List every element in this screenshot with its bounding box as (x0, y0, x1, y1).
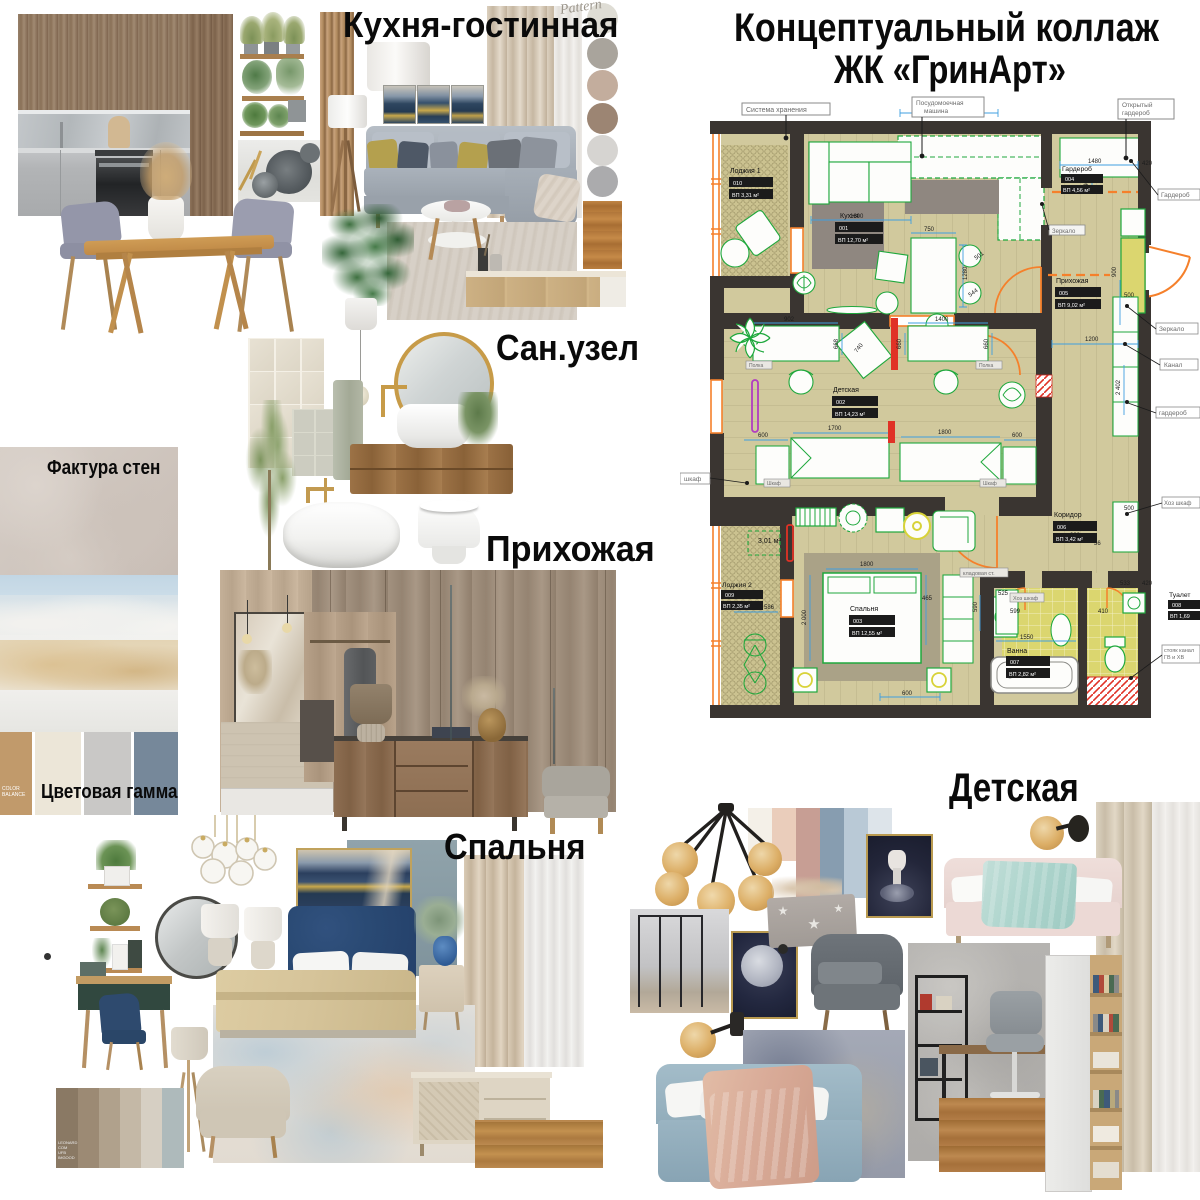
svg-text:420: 420 (1142, 161, 1153, 167)
svg-text:009: 009 (725, 593, 734, 599)
svg-text:Кухня: Кухня (840, 213, 859, 220)
svg-text:500: 500 (1124, 293, 1135, 299)
svg-text:004: 004 (1065, 177, 1074, 183)
svg-text:Гардероб: Гардероб (1161, 191, 1190, 199)
svg-text:ВП 3,31 м²: ВП 3,31 м² (732, 193, 759, 199)
svg-text:гардероб: гардероб (1159, 409, 1187, 417)
svg-text:ВП 12,55 м²: ВП 12,55 м² (852, 631, 882, 637)
svg-text:002: 002 (836, 400, 845, 406)
svg-text:005: 005 (1059, 291, 1068, 297)
svg-text:гардероб: гардероб (1122, 109, 1150, 117)
svg-text:420: 420 (1142, 581, 1153, 587)
svg-text:Шкаф: Шкаф (983, 481, 997, 487)
svg-text:Зеркало: Зеркало (1159, 326, 1185, 333)
svg-text:Хоз шкаф: Хоз шкаф (1164, 501, 1192, 507)
svg-text:Шкаф: Шкаф (767, 481, 781, 487)
svg-text:410: 410 (1098, 609, 1109, 615)
svg-text:стояк канал: стояк канал (1164, 648, 1194, 654)
svg-text:кладовая ст.: кладовая ст. (963, 571, 995, 577)
svg-text:660: 660 (897, 338, 903, 349)
svg-text:3,01 м²: 3,01 м² (758, 538, 781, 545)
svg-text:Система хранения: Система хранения (746, 107, 807, 114)
svg-text:668: 668 (834, 338, 840, 349)
svg-text:ВП 2,82 м²: ВП 2,82 м² (1009, 672, 1036, 678)
svg-text:ВП 9,02 м²: ВП 9,02 м² (1058, 303, 1085, 309)
svg-text:600: 600 (1012, 433, 1023, 439)
svg-text:Канал: Канал (1164, 362, 1183, 369)
svg-text:Лоджия 1: Лоджия 1 (730, 168, 761, 175)
svg-text:600: 600 (758, 433, 769, 439)
svg-text:машина: машина (924, 108, 949, 115)
svg-text:1480: 1480 (1088, 159, 1102, 165)
svg-text:006: 006 (1057, 525, 1066, 531)
svg-text:Открытый: Открытый (1122, 101, 1153, 109)
svg-text:ВП 12,70 м²: ВП 12,70 м² (838, 238, 868, 244)
svg-text:ВП 1,69: ВП 1,69 (1170, 614, 1190, 620)
svg-text:1550: 1550 (1020, 635, 1034, 641)
svg-text:2 000: 2 000 (802, 609, 808, 625)
svg-text:1280: 1280 (963, 266, 969, 280)
svg-text:599: 599 (1010, 609, 1021, 615)
svg-text:Лоджия 2: Лоджия 2 (722, 582, 752, 589)
svg-text:2 402: 2 402 (1116, 379, 1122, 395)
svg-text:525: 525 (998, 591, 1009, 597)
svg-text:ВП 14,23 м²: ВП 14,23 м² (835, 412, 865, 418)
svg-text:750: 750 (924, 227, 935, 233)
svg-text:Прихожая: Прихожая (1056, 278, 1089, 285)
svg-text:533: 533 (1120, 581, 1131, 587)
svg-text:Полка: Полка (979, 363, 993, 369)
svg-text:Хоз шкаф: Хоз шкаф (1013, 596, 1039, 602)
svg-text:600: 600 (902, 691, 913, 697)
svg-text:003: 003 (853, 619, 862, 625)
svg-text:ГВ и ХВ: ГВ и ХВ (1164, 655, 1184, 661)
svg-text:1400: 1400 (935, 317, 949, 323)
svg-text:465: 465 (922, 596, 933, 602)
svg-text:590: 590 (973, 601, 979, 612)
svg-text:Ванна: Ванна (1007, 648, 1027, 655)
svg-text:Детская: Детская (833, 387, 859, 394)
svg-text:Посудомоечная: Посудомоечная (916, 100, 964, 107)
svg-text:ВП 2,35 м²: ВП 2,35 м² (723, 604, 750, 610)
svg-text:1800: 1800 (938, 430, 952, 436)
svg-text:902: 902 (784, 317, 795, 323)
svg-text:Гардероб: Гардероб (1062, 165, 1092, 173)
svg-text:1700: 1700 (828, 426, 842, 432)
svg-text:Коридор: Коридор (1054, 512, 1082, 519)
svg-text:001: 001 (839, 226, 848, 232)
svg-text:586: 586 (764, 605, 775, 611)
svg-text:660: 660 (984, 338, 990, 349)
svg-text:Туалет: Туалет (1169, 592, 1191, 599)
svg-text:Спальня: Спальня (850, 606, 878, 613)
svg-text:010: 010 (733, 181, 742, 187)
svg-text:ВП 4,56 м²: ВП 4,56 м² (1063, 188, 1090, 194)
svg-text:1200: 1200 (1085, 337, 1099, 343)
svg-text:Зеркало: Зеркало (1052, 229, 1076, 235)
svg-text:Полка: Полка (749, 363, 763, 369)
svg-text:1800: 1800 (860, 562, 874, 568)
svg-text:900: 900 (1112, 266, 1118, 277)
svg-text:008: 008 (1172, 603, 1181, 609)
svg-text:007: 007 (1010, 660, 1019, 666)
svg-text:ВП 3,42 м²: ВП 3,42 м² (1056, 537, 1083, 543)
svg-text:шкаф: шкаф (684, 476, 702, 483)
